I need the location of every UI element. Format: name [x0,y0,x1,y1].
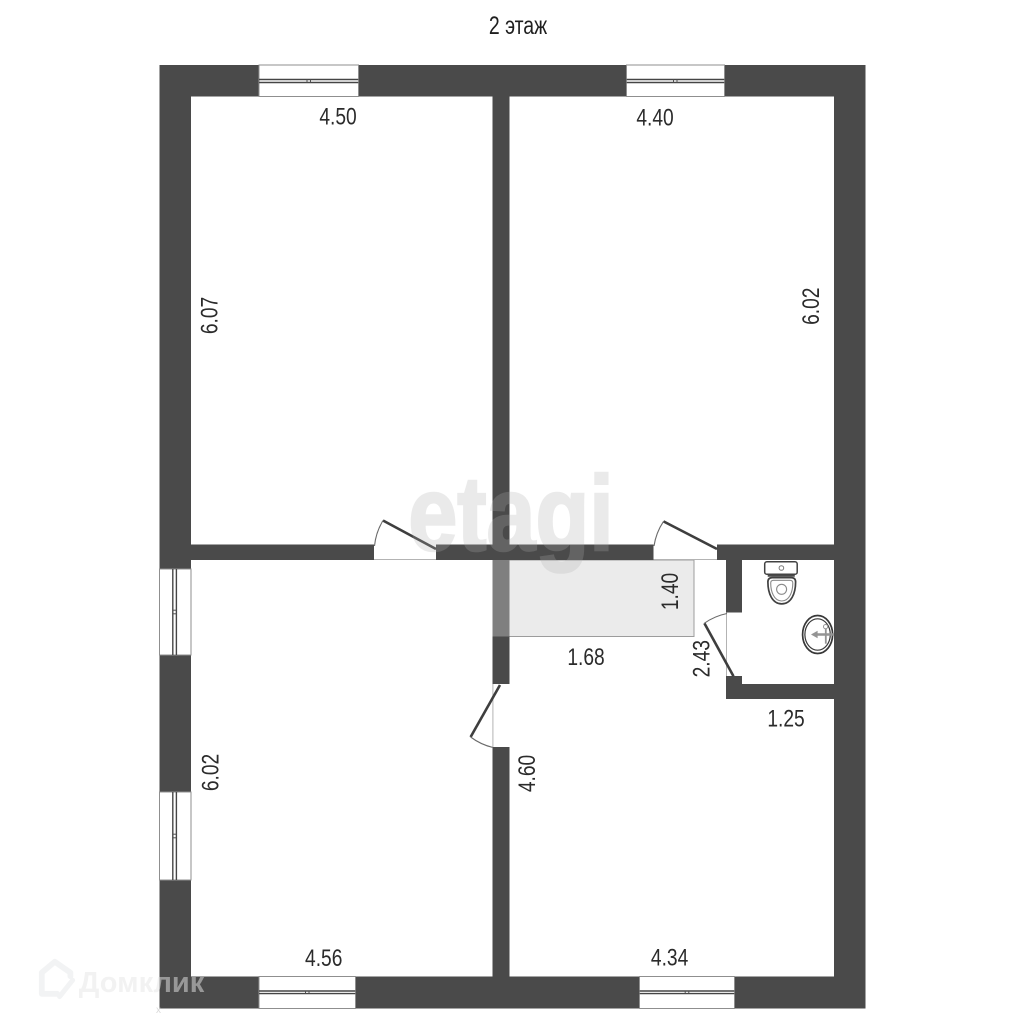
svg-text:4.34: 4.34 [651,944,688,972]
svg-text:4.40: 4.40 [636,104,673,132]
svg-text:6.02: 6.02 [196,754,224,791]
svg-text:6.02: 6.02 [797,288,825,325]
svg-text:4.60: 4.60 [513,755,541,792]
svg-text:2 этаж: 2 этаж [489,12,547,40]
svg-text:4.50: 4.50 [319,102,356,130]
svg-text:x: x [156,1005,161,1016]
svg-text:4.56: 4.56 [305,944,342,972]
svg-text:1.25: 1.25 [767,704,804,732]
svg-text:etagi: etagi [408,454,613,573]
svg-text:6.07: 6.07 [196,297,224,334]
svg-text:1.68: 1.68 [567,643,604,671]
svg-text:Домклик: Домклик [79,967,205,999]
svg-text:2.43: 2.43 [687,640,715,677]
svg-text:1.40: 1.40 [656,573,684,610]
